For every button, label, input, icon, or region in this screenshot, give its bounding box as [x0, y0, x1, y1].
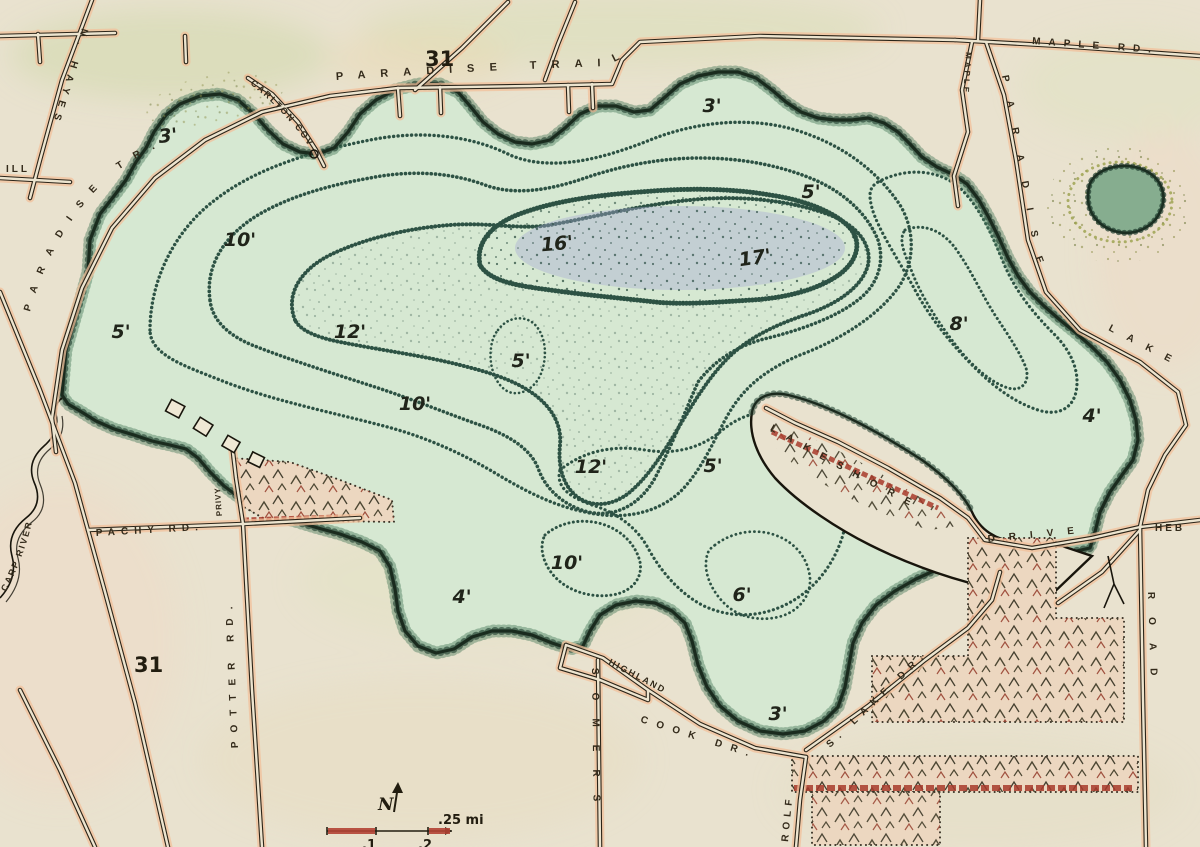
lake-map-canvas: 3' 10' 5' 12' 10' 5' 16' 12' 17' 3' 5' 5…: [0, 0, 1200, 847]
depth-label: 5': [801, 181, 820, 203]
highway-31-shield-bottom: 31: [134, 653, 163, 677]
svg-text:ROAD: ROAD: [1145, 592, 1159, 694]
road-label-maple-spur: MAPLE: [961, 52, 973, 96]
depth-label: 10': [224, 229, 256, 251]
depth-label: 4': [1081, 405, 1101, 427]
scale-tick-label-2: .2: [418, 838, 432, 847]
depth-label: 12': [334, 321, 366, 343]
road-label-mill-partial: ILL: [6, 164, 30, 175]
depth-label: 3': [768, 703, 787, 725]
depth-label: 10': [551, 552, 583, 574]
depth-label: 4': [451, 586, 471, 608]
depth-label: 5': [511, 350, 530, 372]
road-label-heb-partial: HEB: [1155, 523, 1185, 534]
depth-label: 10': [399, 393, 431, 415]
depth-label: 5': [111, 321, 130, 343]
depth-label: 3': [702, 95, 721, 117]
hand-drawn-lake-map: 3' 10' 5' 12' 10' 5' 16' 12' 17' 3' 5' 5…: [0, 0, 1200, 847]
scale-bar-red-segment-2: [429, 828, 450, 834]
depth-label: 16': [540, 232, 574, 257]
road-label-somers: SOMERS: [589, 668, 602, 819]
depth-label: 6': [732, 584, 751, 606]
forest-rolf-trees: [812, 792, 940, 845]
svg-text:SOMERS: SOMERS: [589, 668, 602, 819]
depth-label: 12': [575, 456, 607, 478]
highway-31-shield-top: 31: [425, 47, 454, 71]
road-label-paradise-lake-road-seg3: ROAD: [1145, 592, 1159, 694]
north-label: N: [377, 795, 395, 815]
scale-end-label: .25 mi: [438, 813, 484, 828]
depth-label: 5': [703, 455, 722, 477]
scale-bar-red-segment-1: [328, 828, 375, 834]
scale-tick-label-1: .1: [362, 838, 376, 847]
depth-label: 17': [737, 245, 772, 271]
depth-label: 8': [949, 313, 968, 335]
svg-text:MAPLE: MAPLE: [961, 52, 973, 96]
